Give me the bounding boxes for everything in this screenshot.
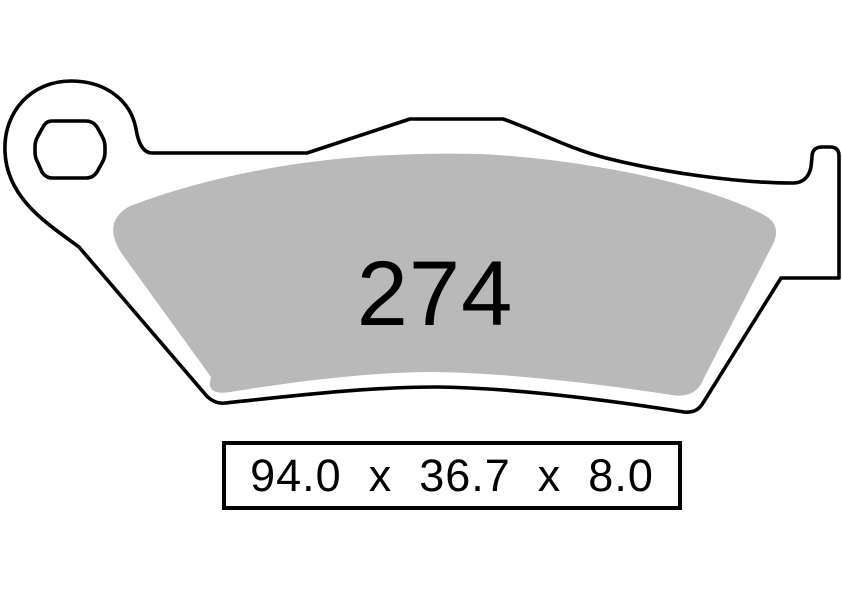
dimensions-box: 94.0 x 36.7 x 8.0: [222, 441, 682, 510]
brake-pad-diagram: 274 94.0 x 36.7 x 8.0: [0, 0, 842, 595]
pad-number: 274: [340, 248, 530, 340]
mounting-hole: [35, 121, 105, 178]
dimensions-text: 94.0 x 36.7 x 8.0: [250, 453, 654, 498]
